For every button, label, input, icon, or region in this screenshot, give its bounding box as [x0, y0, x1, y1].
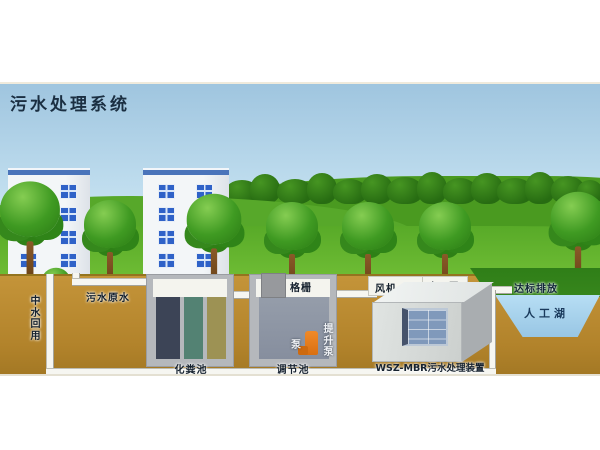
raw-sewage-label: 污水原水: [86, 289, 130, 304]
regulating-tank-label: 调节池: [258, 361, 328, 376]
bar-screen-label: 格栅: [290, 279, 312, 294]
scene-illustration: 污水处理系统: [0, 82, 600, 376]
septic-chamber-2: [184, 297, 203, 359]
septic-chamber-3: [207, 297, 226, 359]
raw-sewage-pipe: [72, 278, 152, 286]
septic-tank-top: [153, 279, 227, 297]
lift-pump-label: 提升泵: [322, 324, 335, 359]
roof-band: [8, 170, 90, 175]
window: [158, 207, 175, 222]
artificial-lake-label: 人工湖: [524, 305, 569, 321]
window: [158, 253, 175, 268]
septic-tank-label: 化粪池: [156, 361, 226, 376]
septic-chamber-1: [156, 297, 180, 359]
mbr-unit-label: WSZ-MBR污水处理装置: [364, 360, 496, 374]
tree-canopy: [187, 194, 242, 244]
tree: [80, 200, 140, 284]
septic-tank: [146, 274, 234, 367]
tree-canopy: [551, 192, 600, 242]
tree-canopy: [342, 202, 394, 250]
treeline-ridge: [225, 168, 600, 204]
tree: [0, 181, 65, 278]
pump-label: 泵: [291, 336, 302, 351]
tree: [547, 192, 600, 280]
page-title: 污水处理系统: [10, 90, 130, 115]
tree-canopy: [419, 202, 471, 250]
bar-screen-block: [261, 273, 286, 298]
reclaimed-water-label: 中水回用: [29, 296, 42, 342]
mbr-unit-3d: [372, 280, 494, 362]
window: [158, 230, 175, 245]
roof-band: [143, 170, 229, 175]
membrane-panel: [402, 308, 448, 346]
tree-canopy: [84, 200, 136, 248]
tree-canopy: [266, 202, 318, 250]
standard-discharge-label: 达标排放: [514, 280, 558, 295]
window: [158, 184, 175, 199]
reuse-riser-pipe: [46, 274, 54, 374]
tree-canopy: [0, 181, 60, 236]
tree-trunk: [27, 241, 34, 278]
tree: [183, 194, 246, 282]
lift-pump-icon: [305, 331, 318, 355]
page: { "title": "污水处理系统", "labels": { "raw_se…: [0, 0, 600, 450]
